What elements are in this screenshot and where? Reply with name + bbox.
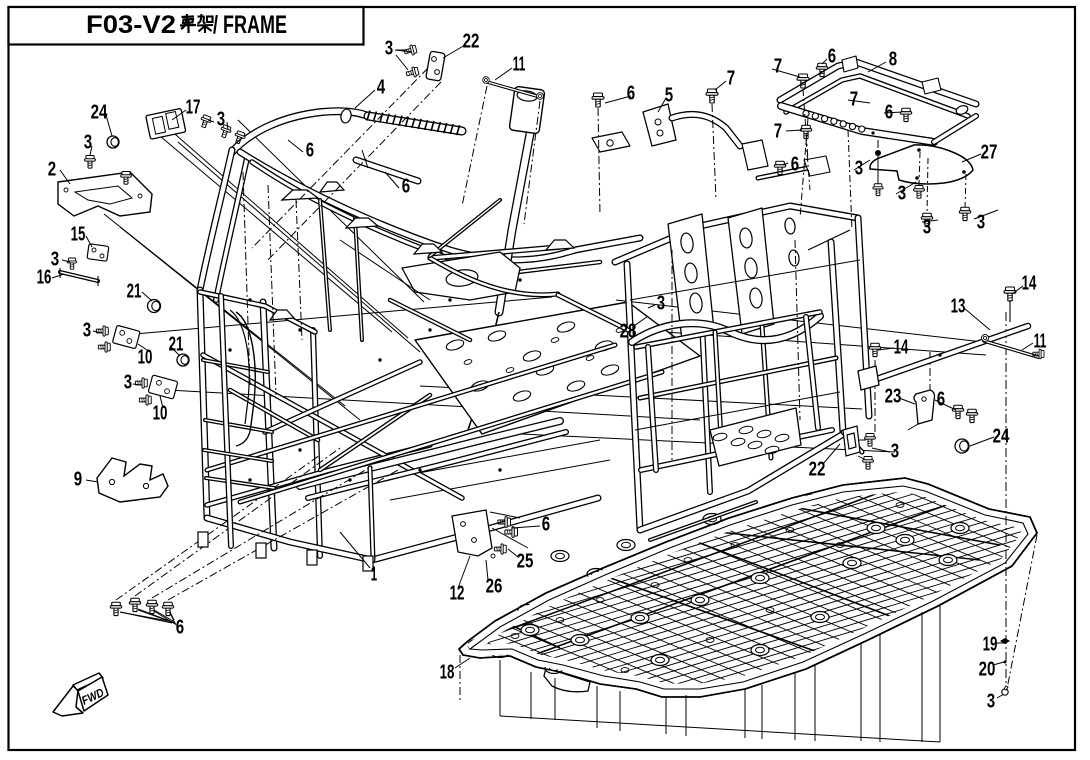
svg-text:3: 3 [923, 215, 931, 238]
svg-text:18: 18 [440, 660, 455, 683]
svg-text:13: 13 [951, 294, 966, 317]
svg-text:9: 9 [74, 467, 82, 490]
svg-text:28: 28 [620, 319, 637, 342]
svg-text:20: 20 [979, 657, 996, 680]
svg-text:19: 19 [983, 632, 998, 655]
svg-text:23: 23 [885, 384, 902, 407]
svg-text:27: 27 [981, 140, 998, 163]
svg-text:24: 24 [993, 424, 1010, 447]
svg-text:6: 6 [402, 174, 410, 197]
svg-text:11: 11 [1034, 329, 1047, 352]
svg-text:12: 12 [450, 581, 465, 604]
svg-text:7: 7 [774, 119, 782, 142]
svg-text:10: 10 [153, 401, 168, 424]
svg-text:7: 7 [774, 54, 782, 77]
svg-text:14: 14 [894, 335, 909, 358]
svg-text:3: 3 [385, 36, 393, 59]
svg-text:6: 6 [937, 387, 945, 410]
svg-text:3: 3 [898, 181, 906, 204]
svg-text:/ FRAME: / FRAME [213, 11, 287, 39]
svg-text:7: 7 [727, 66, 735, 89]
svg-text:3: 3 [51, 247, 59, 270]
svg-text:6: 6 [828, 44, 836, 67]
svg-text:6: 6 [627, 81, 635, 104]
svg-text:6: 6 [306, 138, 314, 161]
svg-text:8: 8 [889, 47, 897, 70]
svg-text:5: 5 [665, 83, 673, 106]
svg-text:4: 4 [377, 75, 386, 98]
svg-text:6: 6 [885, 100, 893, 123]
svg-text:2: 2 [48, 157, 56, 180]
svg-text:3: 3 [124, 370, 132, 393]
svg-text:11: 11 [513, 52, 526, 75]
svg-text:3: 3 [891, 439, 899, 462]
svg-text:3: 3 [855, 156, 863, 179]
svg-text:22: 22 [463, 29, 480, 52]
svg-text:6: 6 [176, 615, 184, 638]
svg-text:22: 22 [809, 457, 826, 480]
svg-text:3: 3 [987, 689, 995, 712]
svg-text:7: 7 [850, 87, 858, 110]
svg-text:25: 25 [517, 549, 534, 572]
svg-text:3: 3 [657, 291, 665, 314]
svg-text:1: 1 [371, 562, 377, 585]
svg-text:16: 16 [37, 265, 52, 288]
svg-text:24: 24 [91, 100, 108, 123]
svg-text:6: 6 [791, 152, 799, 175]
svg-text:17: 17 [186, 95, 201, 118]
svg-text:15: 15 [71, 222, 86, 245]
svg-text:F03-V2: F03-V2 [86, 11, 176, 39]
svg-text:3: 3 [83, 318, 91, 341]
svg-text:3: 3 [217, 107, 225, 130]
svg-text:6: 6 [542, 512, 550, 535]
svg-text:21: 21 [127, 279, 142, 302]
svg-text:14: 14 [1022, 271, 1037, 294]
svg-text:3: 3 [977, 210, 985, 233]
